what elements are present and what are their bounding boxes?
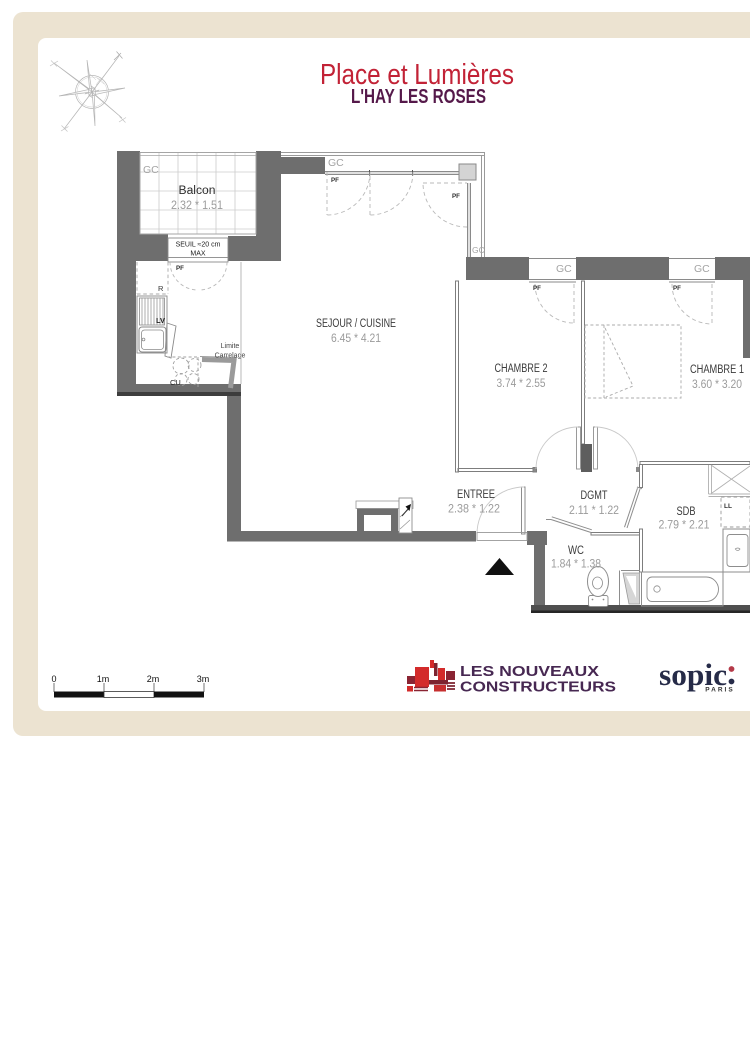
- svg-text:LES NOUVEAUX: LES NOUVEAUX: [460, 664, 599, 680]
- svg-text:L'HAY LES ROSES: L'HAY LES ROSES: [351, 86, 486, 108]
- svg-text:R: R: [158, 284, 164, 293]
- svg-text:3.60 * 3.20: 3.60 * 3.20: [692, 379, 742, 391]
- svg-text:0: 0: [51, 674, 56, 684]
- svg-text:6.45 * 4.21: 6.45 * 4.21: [331, 333, 381, 345]
- svg-text:Limite: Limite: [221, 343, 240, 350]
- svg-text:2m: 2m: [147, 674, 160, 684]
- svg-text:PF: PF: [673, 285, 681, 292]
- svg-text:SEJOUR / CUISINE: SEJOUR / CUISINE: [316, 318, 396, 330]
- svg-text:2.11 * 1.22: 2.11 * 1.22: [569, 505, 619, 517]
- svg-text:PF: PF: [533, 285, 541, 292]
- svg-text:CONSTRUCTEURS: CONSTRUCTEURS: [460, 680, 616, 696]
- svg-text:DGMT: DGMT: [581, 490, 608, 502]
- svg-text:CHAMBRE 1: CHAMBRE 1: [690, 364, 744, 376]
- svg-text:SEUIL ≈20 cm: SEUIL ≈20 cm: [176, 242, 221, 249]
- svg-text:MAX: MAX: [190, 251, 206, 258]
- svg-text:GC: GC: [556, 263, 572, 275]
- svg-text:WC: WC: [568, 545, 584, 557]
- svg-text:1m: 1m: [97, 674, 110, 684]
- svg-text:CHAMBRE 2: CHAMBRE 2: [495, 363, 548, 375]
- svg-text:LV: LV: [156, 316, 165, 325]
- svg-text:3m: 3m: [197, 674, 210, 684]
- svg-text:PF: PF: [452, 193, 460, 200]
- svg-text:PARIS: PARIS: [705, 687, 734, 694]
- svg-text:GC: GC: [328, 157, 344, 169]
- svg-text:2.38 * 1.22: 2.38 * 1.22: [448, 504, 500, 516]
- svg-text:Balcon: Balcon: [179, 185, 216, 197]
- svg-text:CU: CU: [170, 378, 181, 387]
- svg-text:2.79 * 2.21: 2.79 * 2.21: [659, 520, 710, 532]
- svg-text:GC: GC: [143, 164, 159, 176]
- svg-text:1.84 * 1.38: 1.84 * 1.38: [551, 559, 601, 571]
- svg-text:SDB: SDB: [677, 506, 696, 518]
- svg-text:PF: PF: [331, 177, 339, 184]
- svg-text:PF: PF: [176, 265, 184, 272]
- svg-text:GC: GC: [694, 263, 710, 275]
- svg-text:LL: LL: [724, 503, 732, 510]
- svg-text:ENTREE: ENTREE: [457, 489, 495, 501]
- svg-text:2.32 * 1.51: 2.32 * 1.51: [171, 200, 223, 212]
- svg-text:GC: GC: [472, 245, 485, 255]
- svg-text:3.74 * 2.55: 3.74 * 2.55: [497, 378, 546, 390]
